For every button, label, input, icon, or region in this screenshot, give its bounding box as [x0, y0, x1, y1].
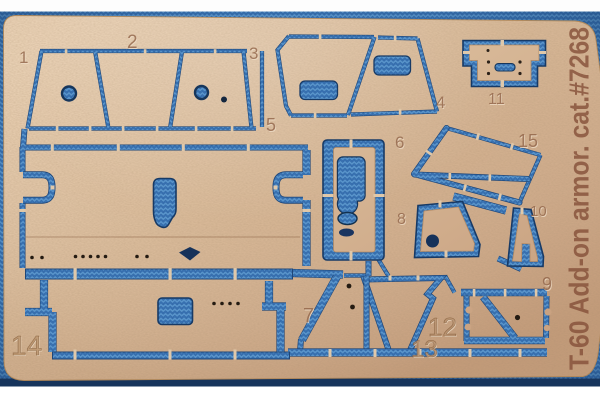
svg-text:T-60 Add-on armor. cat.#7268: T-60 Add-on armor. cat.#7268 [564, 27, 595, 370]
svg-text:6: 6 [395, 133, 404, 152]
svg-text:9: 9 [542, 274, 552, 294]
svg-text:8: 8 [397, 211, 406, 228]
svg-text:10: 10 [530, 203, 547, 220]
svg-text:5: 5 [266, 115, 276, 135]
svg-text:2: 2 [127, 32, 138, 53]
svg-text:13: 13 [411, 336, 438, 363]
svg-text:14: 14 [11, 330, 42, 361]
svg-text:7: 7 [303, 305, 314, 327]
svg-text:1: 1 [19, 48, 28, 67]
svg-text:11: 11 [488, 91, 505, 108]
svg-text:15: 15 [518, 131, 538, 151]
svg-text:4: 4 [436, 93, 445, 112]
svg-text:3: 3 [249, 44, 258, 63]
